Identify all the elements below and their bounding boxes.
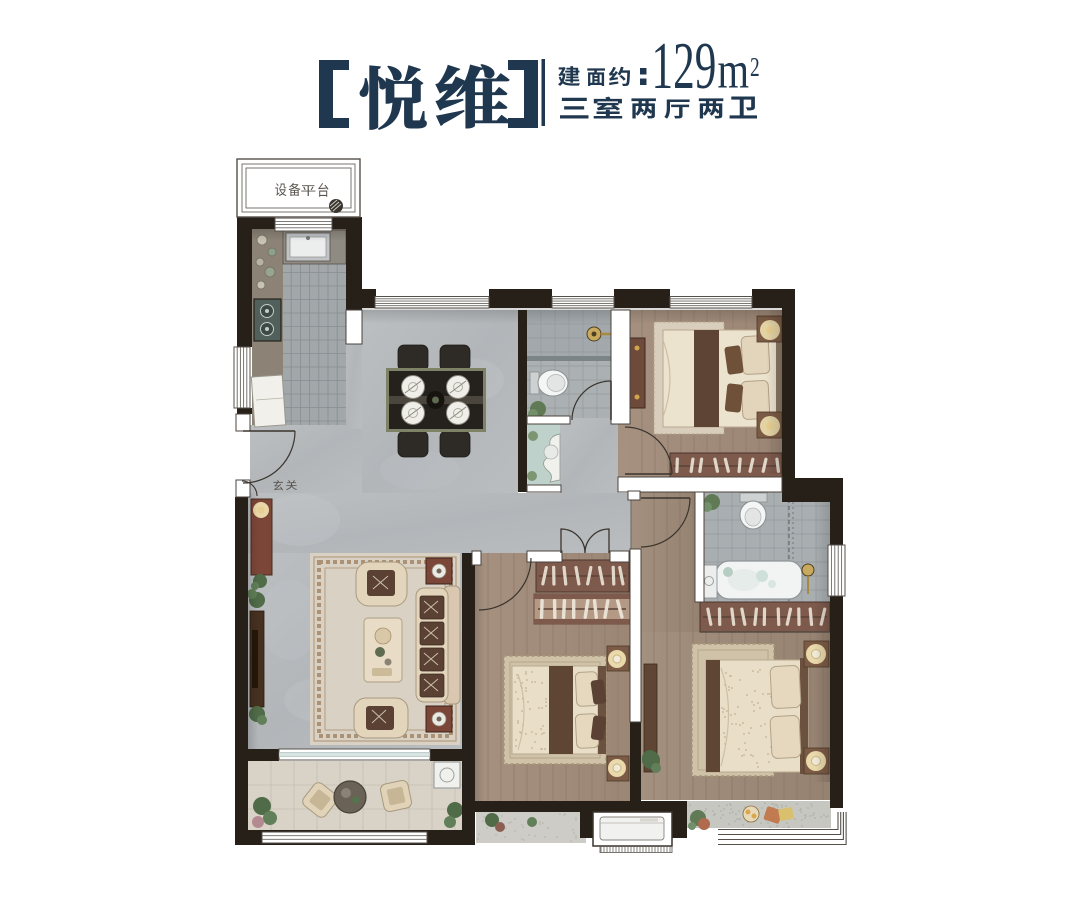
svg-text:129: 129 <box>652 30 717 104</box>
svg-text:m: m <box>718 42 750 100</box>
svg-text:2: 2 <box>750 53 760 83</box>
